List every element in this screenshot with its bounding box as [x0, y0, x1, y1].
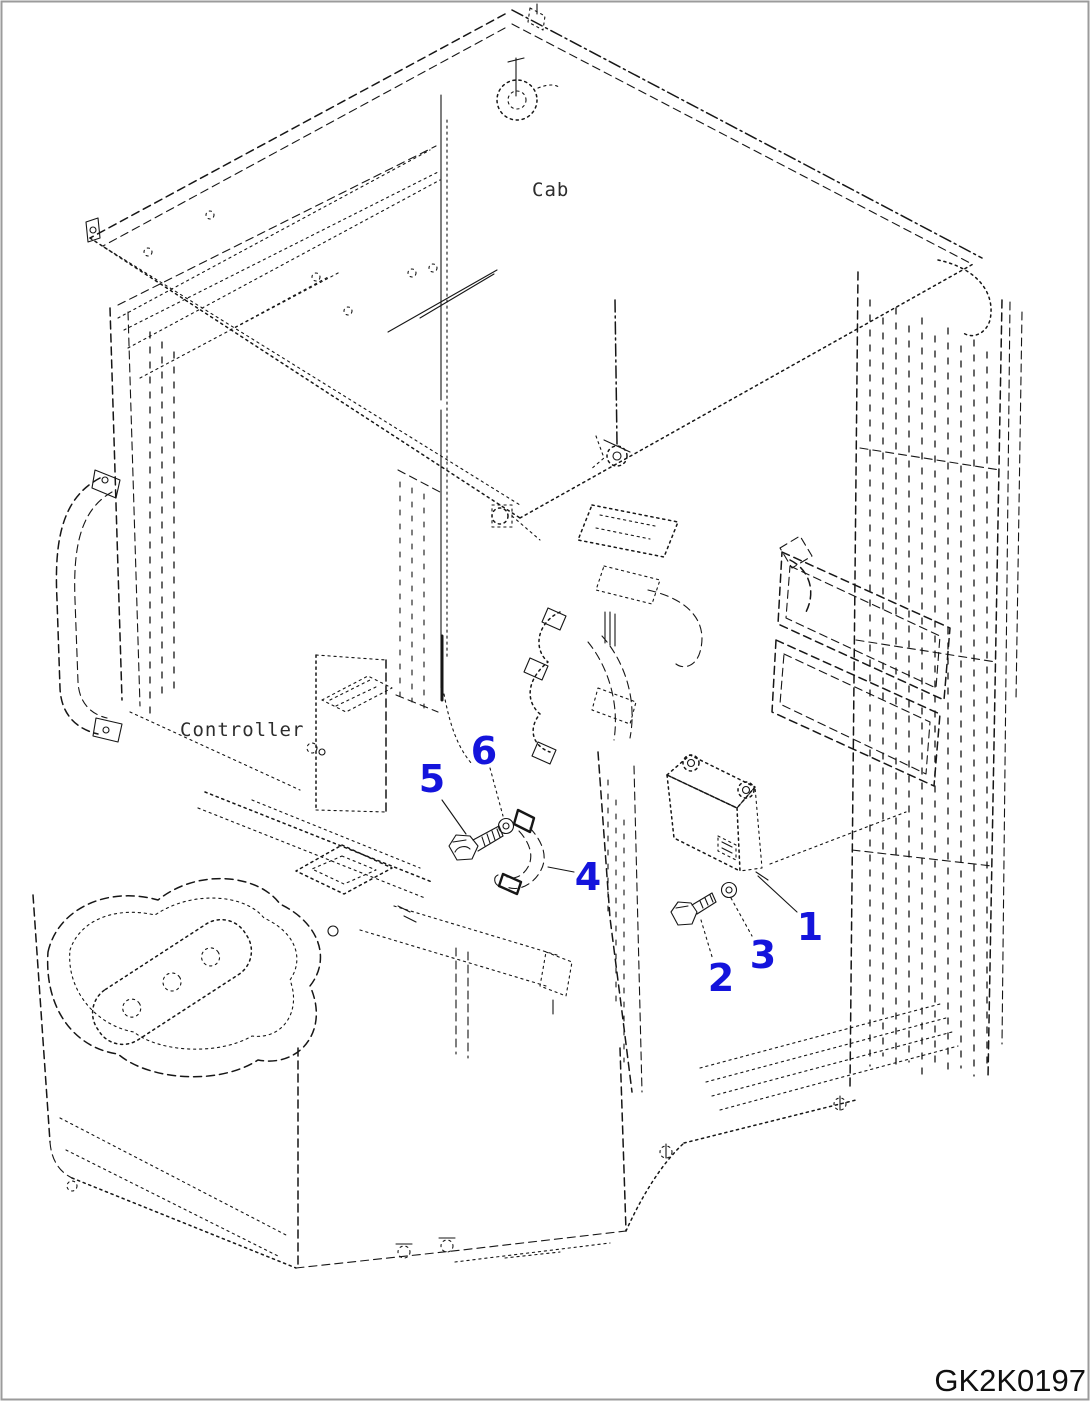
- parts-diagram-svg: Cab Controller 1 2 3 4 5 6 GK2K0197: [0, 0, 1090, 1401]
- center-rear-pillar: [598, 752, 906, 1092]
- controller-mount-plate: [307, 655, 392, 812]
- callout-5: 5: [419, 757, 445, 801]
- callout-3: 3: [750, 933, 776, 977]
- part-washer-3: [722, 883, 737, 898]
- right-rear-pillar: [850, 272, 1022, 1086]
- right-side-windows: [772, 260, 991, 786]
- front-right-post: [396, 470, 440, 712]
- callout-2: 2: [708, 956, 734, 1000]
- roof-antenna: [497, 58, 560, 120]
- callout-1: 1: [797, 905, 823, 949]
- cab-roof: [86, 4, 982, 518]
- floor-and-base: [33, 792, 958, 1268]
- part-clamp-4: [495, 810, 544, 894]
- diagram-page: Cab Controller 1 2 3 4 5 6 GK2K0197: [0, 0, 1090, 1401]
- part-controller-box: [667, 755, 768, 880]
- front-console: [48, 879, 321, 1077]
- part-bolt-5: [449, 826, 503, 860]
- front-window: [388, 95, 540, 764]
- callout-6: 6: [471, 729, 497, 773]
- antenna-rod: [590, 300, 630, 470]
- leader-lines: [442, 768, 797, 960]
- figure-code: GK2K0197: [934, 1363, 1086, 1398]
- wiring-harness: [524, 608, 636, 764]
- page-border: [2, 2, 1089, 1400]
- part-bolt-2: [671, 893, 716, 925]
- roof-speaker-plate: [578, 505, 702, 667]
- callout-4: 4: [575, 855, 601, 899]
- left-pillar: [110, 146, 438, 790]
- label-controller: Controller: [180, 719, 304, 741]
- label-cab: Cab: [532, 179, 569, 201]
- part-washer-6: [499, 819, 514, 834]
- left-handrail: [56, 470, 122, 742]
